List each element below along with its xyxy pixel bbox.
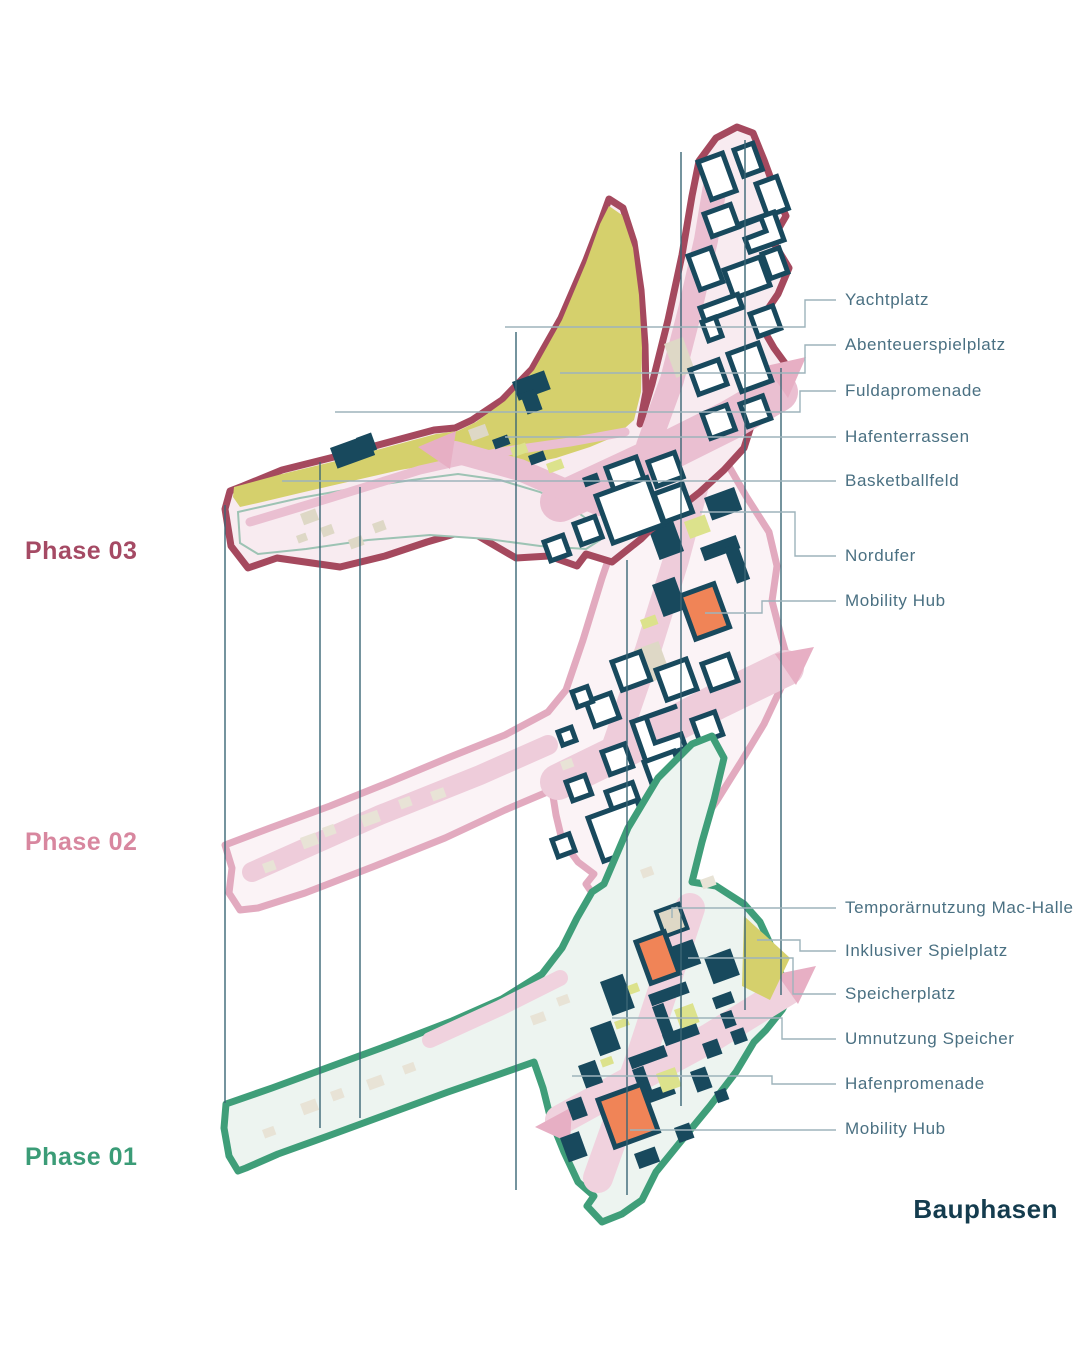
annotation-hafenterrassen: Hafenterrassen: [845, 427, 970, 447]
annotation-basketballfeld: Basketballfeld: [845, 471, 959, 491]
annotation-nordufer: Nordufer: [845, 546, 916, 566]
phase-03-label: Phase 03: [25, 537, 137, 566]
annotation-yachtplatz: Yachtplatz: [845, 290, 929, 310]
annotation-abenteuerspielplatz: Abenteuerspielplatz: [845, 335, 1006, 355]
phasing-map: [0, 0, 1080, 1350]
annotation-mobility-hub-top: Mobility Hub: [845, 591, 946, 611]
annotation-inklusiver-spielplatz: Inklusiver Spielplatz: [845, 941, 1008, 961]
annotation-fuldapromenade: Fuldapromenade: [845, 381, 982, 401]
annotation-umnutzung-speicher: Umnutzung Speicher: [845, 1029, 1015, 1049]
annotation-hafenpromenade: Hafenpromenade: [845, 1074, 985, 1094]
phase-01-label: Phase 01: [25, 1143, 137, 1172]
annotation-mobility-hub-bottom: Mobility Hub: [845, 1119, 946, 1139]
annotation-mac-halle: Temporärnutzung Mac-Halle: [845, 898, 1074, 918]
annotation-speicherplatz: Speicherplatz: [845, 984, 956, 1004]
phase-02-label: Phase 02: [25, 828, 137, 857]
diagram-title: Bauphasen: [913, 1194, 1058, 1225]
bauphasen-diagram: Yachtplatz Abenteuerspielplatz Fuldaprom…: [0, 0, 1080, 1350]
